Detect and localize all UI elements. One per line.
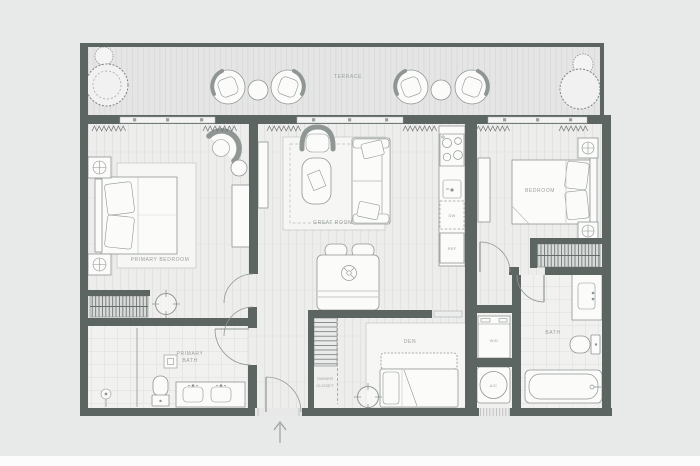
den: DEN [354, 323, 466, 411]
nightstand [578, 222, 598, 240]
den-label: DEN [404, 339, 416, 345]
ac-label: A/C [490, 383, 497, 388]
primary-closet [90, 296, 148, 317]
side-table [231, 160, 247, 176]
side-table [431, 80, 451, 100]
lounge-chair [394, 70, 428, 104]
refrigerator: REF [440, 233, 464, 263]
owner-closet-label-1: OWNER [317, 376, 333, 381]
sofa [352, 138, 390, 224]
owner-closet-label-2: CLOSET [316, 383, 334, 388]
washer-dryer: W/D [478, 316, 510, 358]
dresser [232, 185, 250, 247]
floor-plan: TERRACE [0, 0, 700, 466]
toilet [152, 376, 169, 406]
primary-bedroom-label: PRIMARY BEDROOM [131, 257, 190, 263]
lounge-chair [455, 70, 489, 104]
dishwasher-label: DW [448, 213, 455, 218]
great-room-label: GREAT ROOM [313, 220, 353, 226]
closet-shelves [314, 318, 337, 366]
daybed [380, 353, 458, 407]
floor-plan-page: TERRACE [0, 0, 700, 466]
kitchen: DW REF [439, 126, 465, 266]
den-slider-door [434, 311, 462, 317]
entry-threshold [255, 408, 302, 416]
bottom-strip [0, 456, 700, 466]
coffee-table [302, 158, 331, 204]
toilet [570, 335, 600, 354]
nightstand [88, 157, 111, 178]
double-vanity [176, 382, 245, 407]
lounge-chair [271, 70, 305, 104]
refrigerator-label: REF [448, 246, 457, 251]
windows [120, 117, 587, 123]
nightstand [578, 138, 598, 158]
washer-dryer-label: W/D [490, 338, 498, 343]
ac-unit: A/C [477, 367, 510, 403]
kitchen-sink [443, 180, 461, 198]
nightstand [88, 254, 111, 275]
primary-bath-label-1: PRIMARY [177, 351, 204, 357]
bath-label: BATH [545, 330, 560, 336]
ac-vent-louver [479, 408, 510, 416]
primary-bed [95, 177, 177, 254]
terrace-label: TERRACE [334, 74, 362, 80]
vanity [572, 272, 602, 320]
door-panel [478, 158, 490, 222]
floor-drain [164, 355, 177, 368]
lounge-chair [211, 70, 245, 104]
bathtub [525, 370, 602, 403]
side-table [248, 80, 268, 100]
armchair [302, 127, 333, 152]
terrace-floor [88, 47, 600, 115]
bedroom-closet [537, 244, 600, 267]
primary-bath-label-2: BATH [182, 358, 197, 364]
bedroom-label: BEDROOM [525, 188, 555, 194]
media-console [258, 142, 268, 208]
